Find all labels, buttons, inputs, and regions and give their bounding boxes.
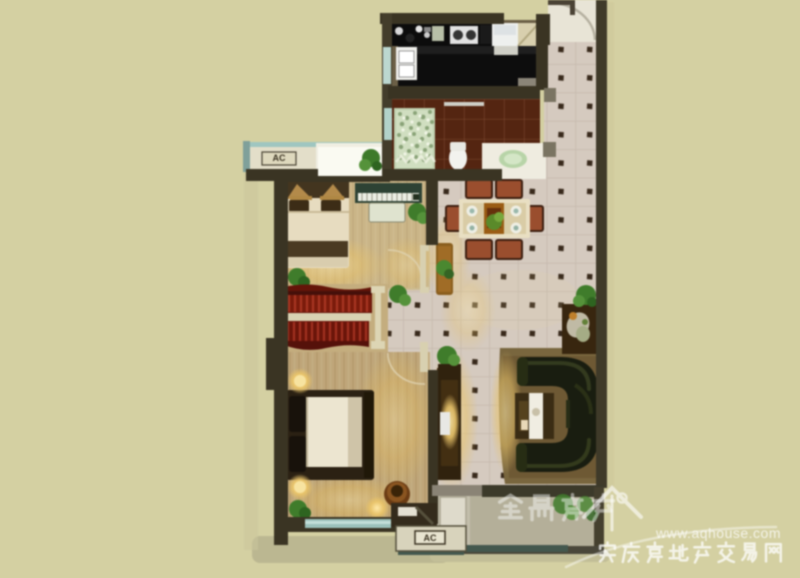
svg-text:AC: AC bbox=[273, 153, 286, 163]
svg-text:AC: AC bbox=[424, 533, 437, 543]
svg-text:www.aqhouse.com: www.aqhouse.com bbox=[655, 525, 781, 541]
